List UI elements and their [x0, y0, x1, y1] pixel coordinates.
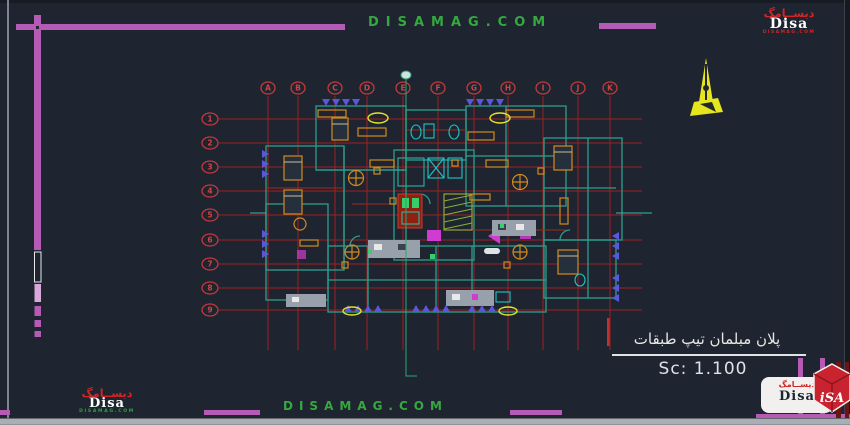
svg-text:7: 7: [207, 260, 212, 269]
svg-text:1: 1: [207, 115, 212, 124]
logo-site-text: DISAMAG.COM: [62, 410, 152, 415]
cad-viewport: ABCDEFGHIJK123456789: [0, 0, 850, 425]
svg-text:J: J: [576, 84, 580, 93]
svg-text:9: 9: [207, 306, 212, 315]
svg-text:K: K: [607, 84, 614, 93]
svg-text:B: B: [295, 84, 301, 93]
svg-text:5: 5: [207, 211, 212, 220]
svg-text:C: C: [332, 84, 338, 93]
svg-text:8: 8: [207, 284, 212, 293]
svg-text:A: A: [265, 84, 271, 93]
svg-text:4: 4: [207, 187, 212, 196]
floor-plan: [250, 99, 652, 315]
svg-text:I: I: [542, 84, 545, 93]
svg-text:F: F: [435, 84, 440, 93]
svg-text:H: H: [505, 84, 511, 93]
svg-text:3: 3: [207, 163, 212, 172]
svg-text:D: D: [364, 84, 370, 93]
logo-site-text: DISAMAG.COM: [753, 31, 825, 36]
isa-cube-logo: iSA: [812, 360, 850, 418]
disamag-logo-top-right: دیســامگ Disa DISAMAG.COM: [753, 8, 825, 36]
svg-text:G: G: [471, 84, 477, 93]
cube-label-text: iSA: [820, 391, 844, 406]
plan-title: پلان مبلمان تیپ طبقات: [608, 330, 806, 348]
window-bottom-bar: [0, 418, 850, 425]
plan-scale: Sc: 1.100: [648, 359, 758, 379]
north-arrow-icon: [690, 58, 723, 116]
svg-text:E: E: [400, 84, 405, 93]
website-text-bottom: DISAMAG.COM: [283, 399, 448, 413]
title-underline: [612, 354, 806, 356]
svg-text:6: 6: [207, 236, 212, 245]
svg-text:2: 2: [207, 139, 212, 148]
website-text-top: DISAMAG.COM: [368, 15, 552, 30]
disamag-logo-bottom-left: دیســامگ Disa DISAMAG.COM: [62, 388, 152, 415]
